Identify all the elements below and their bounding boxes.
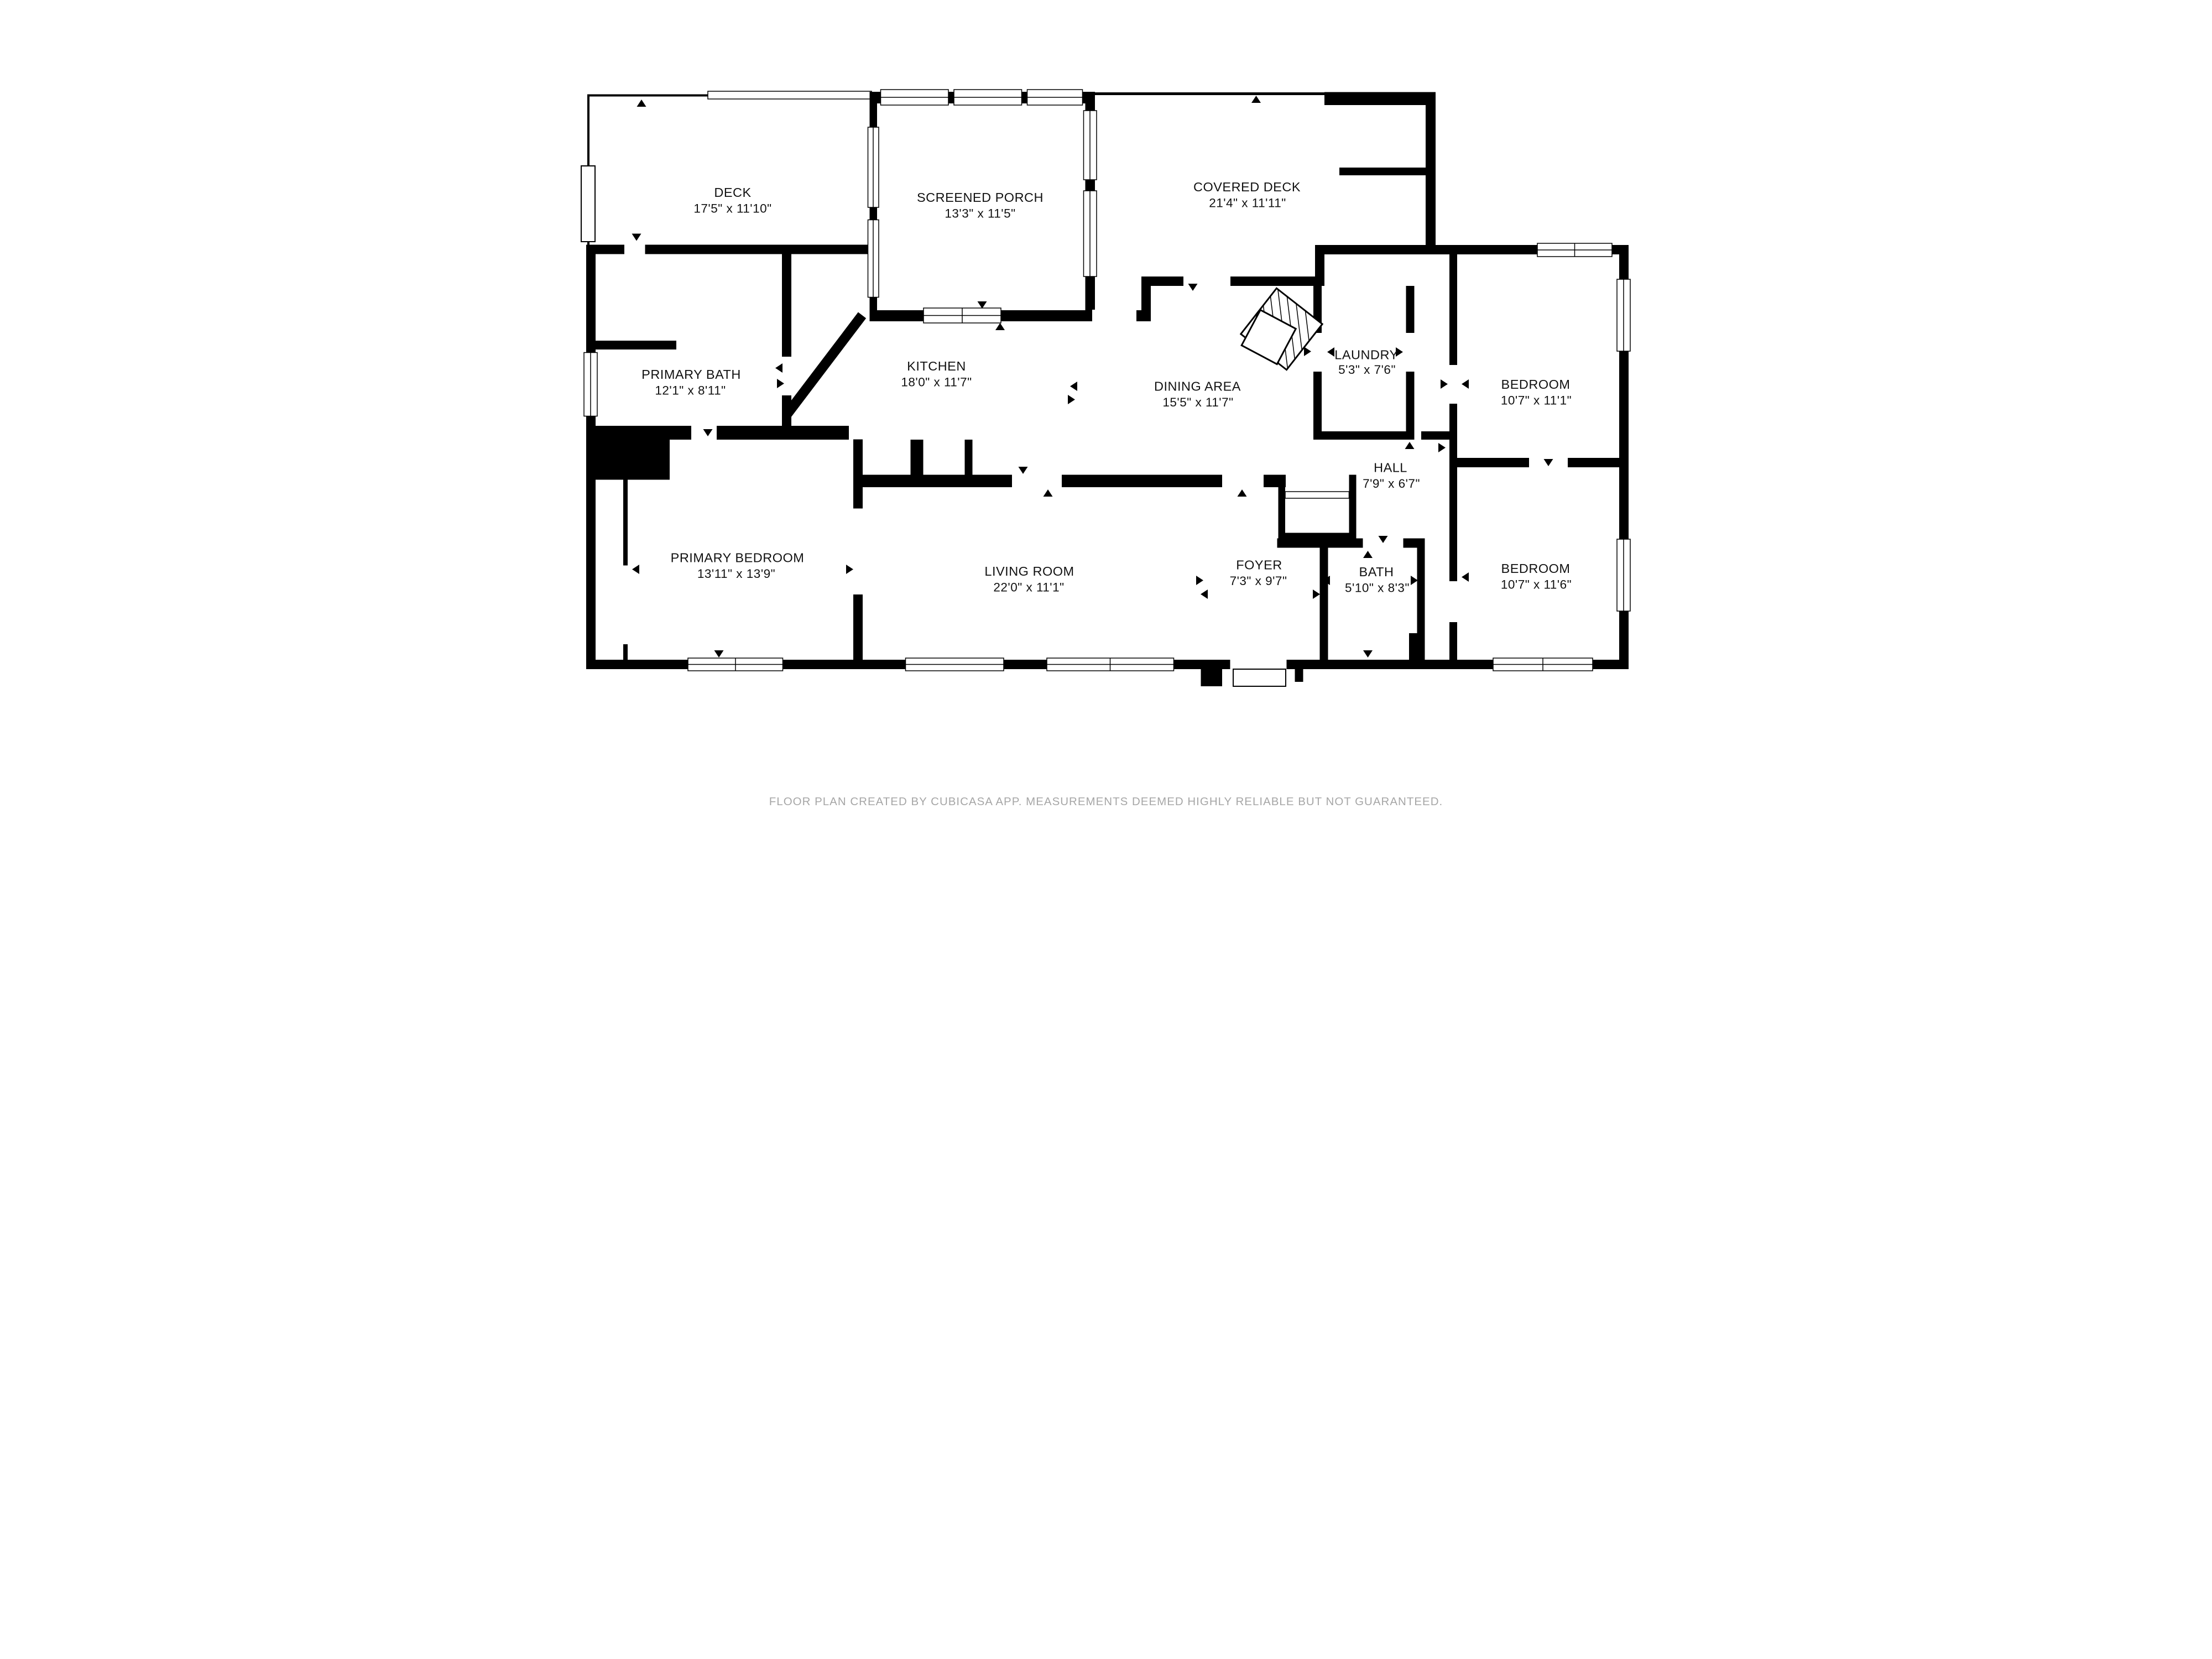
room-dims-laundry: 5'3" x 7'6" xyxy=(1338,363,1396,377)
room-dims-hall: 7'9" x 6'7" xyxy=(1363,477,1420,491)
door-arrow-icon xyxy=(1544,459,1553,466)
room-dims-primary-bath: 12'1" x 8'11" xyxy=(655,384,726,398)
room-label-living-room: LIVING ROOM xyxy=(984,564,1074,578)
room-label-screened-porch: SCREENED PORCH xyxy=(917,190,1044,205)
door-arrow-icon xyxy=(775,363,782,373)
room-label-covered-deck: COVERED DECK xyxy=(1193,180,1301,194)
room-label-bedroom-top: BEDROOM xyxy=(1501,377,1571,392)
room-label-dining-area: DINING AREA xyxy=(1154,379,1241,394)
door-arrow-icon xyxy=(1044,489,1053,497)
covered-deck-edge xyxy=(1094,92,1327,95)
window-symbol xyxy=(881,90,949,105)
window-symbol xyxy=(1617,279,1630,351)
room-dims-screened-porch: 13'3" x 11'5" xyxy=(945,207,1015,221)
window-symbol xyxy=(1084,111,1097,180)
room-label-primary-bath: PRIMARY BATH xyxy=(641,367,741,382)
door-arrow-icon xyxy=(1441,379,1448,389)
door-arrow-icon xyxy=(637,100,646,107)
window-symbol xyxy=(868,220,879,298)
walls xyxy=(586,92,1629,686)
door-arrow-icon xyxy=(1070,382,1077,391)
door-arrow-icon xyxy=(1438,443,1446,452)
room-dims-covered-deck: 21'4" x 11'11" xyxy=(1209,196,1286,210)
room-label-foyer: FOYER xyxy=(1236,558,1282,572)
door-arrow-icon xyxy=(1068,395,1075,404)
door-arrow-icon xyxy=(1304,347,1311,356)
room-label-laundry: LAUNDRY xyxy=(1334,348,1398,362)
room-dims-bedroom-bottom: 10'7" x 11'6" xyxy=(1501,578,1572,592)
door-arrow-icon xyxy=(714,650,724,658)
footer-disclaimer: FLOOR PLAN CREATED BY CUBICASA APP. MEAS… xyxy=(769,795,1443,808)
room-dims-primary-bedroom: 13'11" x 13'9" xyxy=(697,567,775,581)
window-symbol xyxy=(584,353,597,416)
door-arrow-icon xyxy=(632,565,639,574)
room-label-deck: DECK xyxy=(714,185,751,200)
window-symbol xyxy=(1047,658,1174,671)
window-symbol xyxy=(906,658,1004,671)
door-arrow-icon xyxy=(846,565,853,574)
door-arrow-icon xyxy=(1363,551,1373,558)
window-symbol xyxy=(1537,243,1612,257)
window-symbol xyxy=(924,308,1001,323)
room-label-bath: BATH xyxy=(1359,565,1394,579)
door-arrow-icon xyxy=(1462,379,1469,389)
window-symbol xyxy=(1493,658,1593,671)
door-arrow-icon xyxy=(1405,442,1415,449)
door-arrow-icon xyxy=(1201,589,1208,599)
window-symbol xyxy=(1027,90,1083,105)
door-arrow-icon xyxy=(632,234,641,241)
room-dims-deck: 17'5" x 11'10" xyxy=(693,202,771,216)
door-arrow-icon xyxy=(1313,589,1320,599)
door-arrow-icon xyxy=(1196,576,1203,585)
floor-plan-page: DECK 17'5" x 11'10" SCREENED PORCH 13'3"… xyxy=(553,0,1659,830)
door-arrow-icon xyxy=(995,323,1005,330)
window-symbol xyxy=(688,658,783,671)
door-arrow-icon xyxy=(978,301,987,309)
window-symbol xyxy=(868,127,879,207)
window-symbol xyxy=(1084,191,1097,276)
door-arrow-icon xyxy=(1327,347,1334,357)
entry-step xyxy=(1233,669,1286,686)
room-label-kitchen: KITCHEN xyxy=(907,359,966,373)
door-arrow-icon xyxy=(1411,576,1418,585)
room-dims-bedroom-top: 10'7" x 11'1" xyxy=(1501,394,1572,408)
room-dims-foyer: 7'3" x 9'7" xyxy=(1230,574,1287,588)
deck-gate xyxy=(581,166,595,242)
door-arrow-icon xyxy=(1238,489,1247,497)
door-arrow-icon xyxy=(1019,467,1028,474)
room-dims-dining-area: 15'5" x 11'7" xyxy=(1162,395,1233,409)
door-arrow-icon xyxy=(1379,536,1388,543)
window-symbol xyxy=(954,90,1022,105)
door-arrow-icon xyxy=(1462,572,1469,582)
room-dims-bath: 5'10" x 8'3" xyxy=(1345,581,1410,595)
window-symbol xyxy=(1617,539,1630,611)
door-arrow-icon xyxy=(1251,96,1261,103)
room-dims-kitchen: 18'0" x 11'7" xyxy=(901,375,972,389)
room-label-hall: HALL xyxy=(1374,461,1407,475)
room-label-bedroom-bottom: BEDROOM xyxy=(1501,561,1571,576)
floor-plan-canvas: DECK 17'5" x 11'10" SCREENED PORCH 13'3"… xyxy=(553,0,1659,830)
room-label-primary-bedroom: PRIMARY BEDROOM xyxy=(671,551,805,565)
door-arrow-icon xyxy=(1188,284,1198,291)
deck-railing xyxy=(581,91,873,246)
door-arrow-icon xyxy=(1363,650,1373,658)
room-dims-living-room: 22'0" x 11'1" xyxy=(993,581,1064,594)
